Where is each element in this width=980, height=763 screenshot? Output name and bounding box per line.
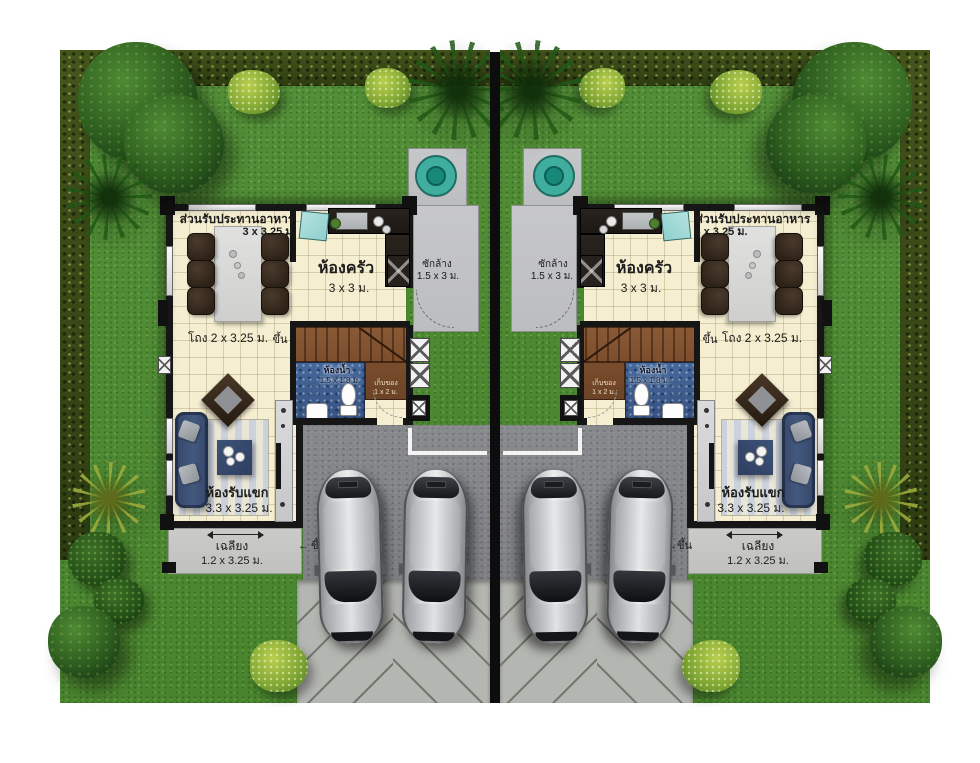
label-kitchen-dims: 3 x 3 ม. [299, 282, 399, 295]
car-mirror [604, 563, 609, 574]
meter-box [412, 400, 426, 416]
wall-stub [158, 300, 168, 326]
label-storage-dims: 1 x 2 ม. [579, 389, 629, 397]
label-porch: เฉลียง [713, 540, 803, 553]
car-grill [617, 631, 659, 641]
label-living: ห้องรับแขก [688, 486, 818, 500]
palm-icon [844, 462, 918, 536]
palm-icon [838, 154, 924, 240]
lot-left: ส่วนรับประทานอาหาร 3 x 3.25 ม. ห้องครัว … [60, 50, 490, 703]
bush-icon [365, 68, 411, 108]
bush-icon [579, 68, 625, 108]
tableware [745, 272, 752, 279]
water-tank-lid [426, 166, 446, 186]
label-kitchen: ห้องครัว [286, 260, 406, 278]
label-dining: ส่วนรับประทานอาหาร [142, 213, 332, 226]
label-storage-dims: 1 x 2 ม. [361, 389, 411, 397]
cooktop-burner [606, 216, 617, 227]
speaker [704, 408, 709, 413]
car-mirror [314, 565, 319, 576]
floor-plan-stage: ส่วนรับประทานอาหาร 3 x 3.25 ม. ห้องครัว … [0, 0, 980, 763]
cooktop-burner [382, 225, 391, 234]
dining-chair [701, 287, 729, 315]
walkway-marking [408, 451, 487, 455]
label-laundry: ซักล้าง [397, 259, 477, 270]
meter-box [564, 400, 578, 416]
palm-icon [66, 154, 152, 240]
toilet [634, 383, 649, 406]
divider-wall [490, 52, 500, 703]
label-dining: ส่วนรับประทานอาหาร [658, 213, 848, 226]
dining-chair [261, 287, 289, 315]
walkway-marking [503, 451, 582, 455]
wall-stub [822, 300, 832, 326]
tableware [749, 262, 756, 269]
tv [709, 443, 714, 489]
label-storage: เก็บของ [579, 380, 629, 388]
car-grill [535, 632, 577, 642]
bush-icon [682, 640, 740, 692]
speaker [281, 408, 286, 413]
car-grill [331, 631, 373, 641]
car-roof [324, 500, 376, 569]
window [817, 460, 824, 496]
license-plate [632, 481, 652, 489]
tableware [753, 250, 761, 258]
window [817, 418, 824, 454]
label-porch: เฉลียง [187, 540, 277, 553]
plate [223, 446, 234, 457]
lot-right: ส่วนรับประทานอาหาร 3 x 3.25 ม. ห้องครัว … [500, 50, 930, 703]
wall [296, 418, 377, 425]
plate [226, 457, 235, 466]
car-windshield [613, 570, 666, 602]
label-laundry-dims: 1.5 x 3 ม. [393, 271, 483, 282]
water-tank [415, 155, 457, 197]
license-plate [544, 481, 564, 488]
corner-stub [816, 514, 830, 530]
wall [166, 521, 303, 528]
tableware [238, 272, 245, 279]
wall-stair [290, 321, 410, 327]
dining-chair [775, 260, 803, 288]
car-mirror [519, 565, 524, 576]
label-laundry-dims: 1.5 x 3 ม. [507, 271, 597, 282]
window [166, 418, 173, 454]
palm-icon [72, 462, 146, 536]
cooktop-burner [599, 225, 608, 234]
label-porch-dims: 1.2 x 3.25 ม. [698, 555, 818, 567]
dining-chair [261, 260, 289, 288]
toilet [341, 383, 356, 406]
tv [276, 443, 281, 489]
wall-stair [580, 321, 700, 327]
label-bathroom: ห้องน้ำ [613, 366, 693, 376]
tableware [234, 262, 241, 269]
dining-table [728, 226, 776, 322]
license-plate [426, 481, 446, 488]
bush-icon [710, 70, 762, 114]
dining-chair [775, 233, 803, 261]
window [817, 246, 824, 296]
porch-step-text: ขึ้น [677, 540, 692, 552]
label-laundry: ซักล้าง [513, 259, 593, 270]
car [401, 467, 468, 643]
armchair-cushion [748, 386, 776, 414]
car-mirror [399, 563, 404, 574]
meter-box [819, 356, 832, 374]
label-stairs-up: ขึ้น [688, 334, 732, 346]
plate [745, 452, 755, 462]
dining-chair [187, 287, 215, 315]
car-mirror [381, 563, 386, 574]
label-kitchen: ห้องครัว [584, 260, 704, 278]
label-kitchen-dims: 3 x 3 ม. [591, 282, 691, 295]
stairs [582, 327, 697, 362]
water-tank [533, 155, 575, 197]
license-plate [338, 481, 358, 489]
car-roof [529, 501, 580, 570]
tree-icon [48, 606, 120, 678]
step-arrow-icon [298, 540, 311, 552]
speaker [705, 424, 709, 428]
vent-window [560, 363, 580, 388]
label-dining-dims: 3 x 3.25 ม. [671, 226, 771, 238]
wall [613, 418, 694, 425]
dining-chair [187, 233, 215, 261]
label-porch-dims: 1.2 x 3.25 ม. [172, 555, 292, 567]
label-bathroom: ห้องน้ำ [297, 366, 377, 376]
label-stairs-up: ขึ้น [258, 334, 302, 346]
vent-window [410, 338, 430, 362]
bush-icon [250, 640, 308, 692]
window [734, 204, 802, 211]
wall [687, 521, 824, 528]
car-mirror [670, 565, 675, 576]
tableware [229, 250, 237, 258]
car-roof [410, 501, 461, 570]
car-mirror [466, 565, 471, 576]
dining-chair [775, 287, 803, 315]
water-tank-lid [544, 166, 564, 186]
dimension-arrow-icon [208, 534, 263, 535]
vent-window [560, 338, 580, 362]
speaker [281, 424, 285, 428]
dining-chair [701, 260, 729, 288]
sink [336, 212, 368, 230]
car-windshield [324, 570, 377, 602]
stairs [293, 327, 408, 362]
car-mirror [586, 563, 591, 574]
label-storage: เก็บของ [361, 380, 411, 388]
label-living: ห้องรับแขก [172, 486, 302, 500]
meter-box [158, 356, 171, 374]
bush-icon [228, 70, 280, 114]
car-windshield [408, 571, 461, 603]
plate [755, 457, 764, 466]
tree-icon [870, 606, 942, 678]
dining-chair [187, 260, 215, 288]
car [606, 467, 675, 644]
armchair-cushion [214, 386, 242, 414]
plate [235, 452, 245, 462]
toilet-tank [340, 405, 357, 416]
dimension-arrow-icon [727, 534, 782, 535]
car-roof [615, 500, 667, 569]
label-dining-dims: 3 x 3.25 ม. [219, 226, 319, 238]
window [188, 204, 256, 211]
vent-window [410, 363, 430, 388]
toilet-tank [633, 405, 650, 416]
plate [756, 446, 767, 457]
label-living-dims: 3.3 x 3.25 ม. [691, 502, 811, 515]
corner-stub [160, 514, 174, 530]
car-windshield [529, 571, 582, 603]
label-living-dims: 3.3 x 3.25 ม. [179, 502, 299, 515]
car [521, 467, 588, 643]
car [316, 467, 385, 644]
car-grill [413, 632, 455, 642]
window [166, 246, 173, 296]
